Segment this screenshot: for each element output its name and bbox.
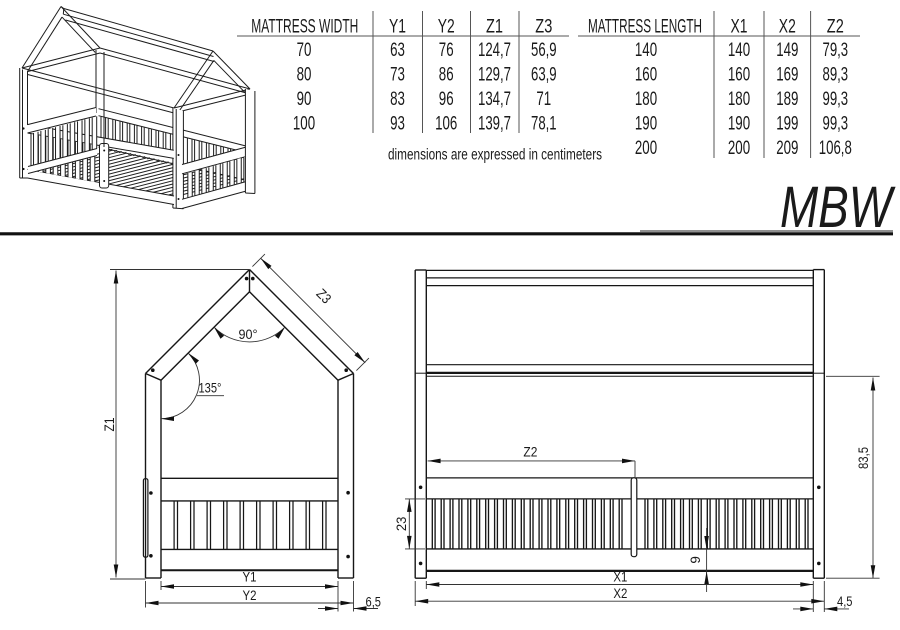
svg-text:63,9: 63,9 (531, 63, 557, 85)
svg-text:Y1: Y1 (389, 16, 406, 38)
svg-text:199: 199 (776, 112, 798, 134)
svg-text:4,5: 4,5 (837, 593, 853, 609)
svg-text:106: 106 (435, 112, 457, 134)
svg-text:100: 100 (293, 112, 315, 134)
svg-text:73: 73 (390, 63, 405, 85)
svg-text:139,7: 139,7 (478, 112, 511, 134)
svg-text:Z1: Z1 (101, 417, 117, 431)
svg-text:X1: X1 (731, 16, 748, 38)
svg-text:200: 200 (635, 137, 657, 159)
svg-text:X2: X2 (613, 585, 627, 601)
svg-text:190: 190 (728, 112, 750, 134)
svg-text:Y1: Y1 (243, 569, 257, 585)
svg-text:83,5: 83,5 (855, 447, 871, 469)
svg-text:76: 76 (439, 39, 454, 61)
svg-text:70: 70 (297, 39, 312, 61)
svg-text:Z2: Z2 (523, 444, 537, 460)
svg-text:124,7: 124,7 (478, 39, 511, 61)
svg-text:149: 149 (776, 39, 798, 61)
svg-text:86: 86 (439, 63, 454, 85)
svg-text:MATTRESS LENGTH: MATTRESS LENGTH (588, 16, 702, 38)
svg-text:Z1: Z1 (486, 16, 503, 38)
svg-text:23: 23 (393, 516, 409, 531)
svg-text:190: 190 (635, 112, 657, 134)
svg-text:160: 160 (728, 63, 750, 85)
svg-text:MBW: MBW (780, 175, 896, 240)
svg-text:MATTRESS WIDTH: MATTRESS WIDTH (251, 16, 358, 38)
svg-text:89,3: 89,3 (823, 63, 849, 85)
svg-text:134,7: 134,7 (478, 88, 511, 110)
svg-text:209: 209 (776, 137, 798, 159)
svg-text:99,3: 99,3 (823, 112, 849, 134)
svg-text:140: 140 (728, 39, 750, 61)
svg-text:80: 80 (297, 63, 312, 85)
svg-text:160: 160 (635, 63, 657, 85)
svg-text:56,9: 56,9 (531, 39, 557, 61)
svg-text:106,8: 106,8 (819, 137, 852, 159)
svg-text:X1: X1 (613, 569, 627, 585)
svg-text:90°: 90° (239, 326, 258, 342)
svg-text:83: 83 (390, 88, 405, 110)
svg-text:93: 93 (390, 112, 405, 134)
svg-text:96: 96 (439, 88, 454, 110)
svg-text:129,7: 129,7 (478, 63, 511, 85)
svg-text:180: 180 (635, 88, 657, 110)
svg-text:6,5: 6,5 (366, 594, 382, 610)
svg-text:135°: 135° (199, 380, 222, 396)
svg-text:79,3: 79,3 (823, 39, 849, 61)
svg-text:189: 189 (776, 88, 798, 110)
svg-text:99,3: 99,3 (823, 88, 849, 110)
svg-text:Z3: Z3 (535, 16, 552, 38)
svg-text:90: 90 (297, 88, 312, 110)
svg-text:140: 140 (635, 39, 657, 61)
svg-text:200: 200 (728, 137, 750, 159)
svg-text:9: 9 (687, 556, 703, 564)
svg-text:dimensions are expressed in ce: dimensions are expressed in centimeters (388, 147, 602, 164)
svg-text:Z2: Z2 (827, 16, 844, 38)
svg-text:180: 180 (728, 88, 750, 110)
svg-text:Y2: Y2 (243, 587, 257, 603)
svg-text:Y2: Y2 (438, 16, 455, 38)
svg-text:169: 169 (776, 63, 798, 85)
svg-text:71: 71 (536, 88, 551, 110)
svg-text:X2: X2 (779, 16, 796, 38)
svg-text:78,1: 78,1 (531, 112, 557, 134)
svg-text:63: 63 (390, 39, 405, 61)
